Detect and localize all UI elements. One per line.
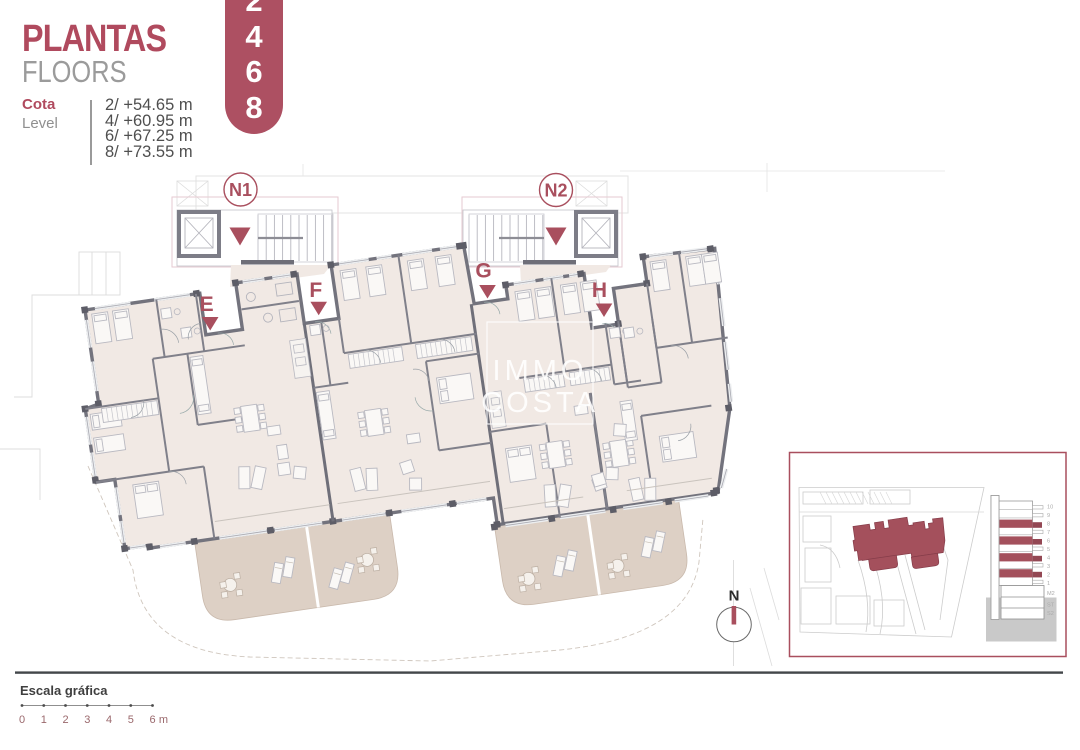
svg-text:4: 4 <box>1047 556 1050 562</box>
svg-text:3: 3 <box>84 714 90 726</box>
svg-text:M2: M2 <box>1047 591 1055 597</box>
svg-text:5: 5 <box>1047 547 1050 553</box>
svg-text:G: G <box>475 260 491 283</box>
svg-text:6: 6 <box>1047 539 1050 545</box>
svg-text:9: 9 <box>1047 513 1050 519</box>
svg-text:10: 10 <box>1047 505 1053 511</box>
svg-text:ST: ST <box>1047 603 1055 609</box>
svg-text:4: 4 <box>106 714 112 726</box>
svg-text:3: 3 <box>1047 564 1050 570</box>
svg-text:E: E <box>200 293 214 316</box>
svg-text:S2: S2 <box>1047 611 1054 617</box>
svg-text:F: F <box>309 279 322 302</box>
svg-text:6: 6 <box>149 714 155 726</box>
svg-text:2: 2 <box>62 714 68 726</box>
svg-text:2: 2 <box>1047 573 1050 579</box>
svg-text:COSTA: COSTA <box>481 387 599 419</box>
svg-text:IMMO: IMMO <box>493 355 588 387</box>
svg-text:m: m <box>159 714 168 726</box>
svg-text:1: 1 <box>1047 581 1050 587</box>
svg-text:1: 1 <box>41 714 47 726</box>
svg-text:N2: N2 <box>544 181 567 201</box>
svg-text:N1: N1 <box>229 180 252 200</box>
svg-text:7: 7 <box>1047 530 1050 536</box>
svg-text:0: 0 <box>19 714 25 726</box>
svg-text:5: 5 <box>128 714 134 726</box>
svg-text:8: 8 <box>1047 522 1050 528</box>
svg-text:N: N <box>729 588 740 605</box>
svg-text:H: H <box>592 279 607 302</box>
